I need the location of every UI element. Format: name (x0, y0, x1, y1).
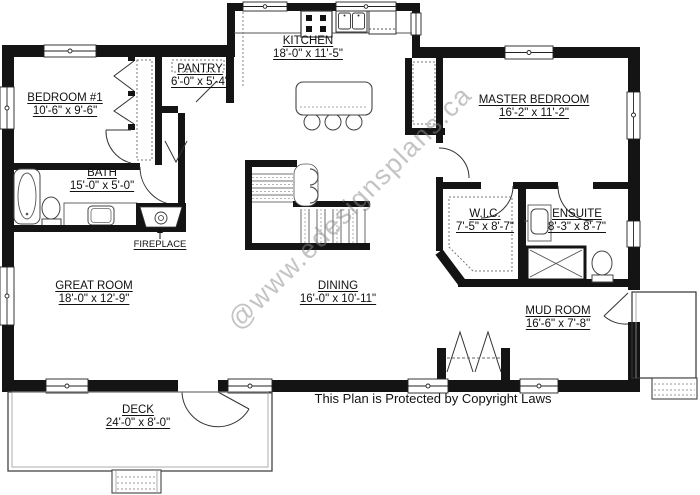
room-label-mud-room: MUD ROOM 16'-6" x 7'-8" (525, 305, 590, 331)
bedroom-closet-shelf (137, 60, 152, 160)
floor-plan: @www.edesignsplans.ca BEDROOM #1 10'-6" … (0, 0, 700, 495)
room-dims: 15'-0" x 5'-0" (70, 180, 134, 193)
mud-room-door (604, 293, 628, 324)
ensuite-toilet-icon (592, 251, 613, 282)
room-dims: 7'-5" x 8'-7" (456, 221, 514, 234)
stool-icon (304, 114, 320, 130)
room-dims: 18'-0" x 11'-5" (273, 48, 343, 61)
bedroom1-door (106, 130, 131, 163)
room-dims: 16'-2" x 11'-2" (479, 107, 590, 120)
room-name: GREAT ROOM (55, 280, 133, 293)
room-label-bath: BATH 15'-0" x 5'-0" (70, 167, 134, 193)
room-name: W.I.C. (456, 208, 514, 221)
room-dims: 16'-6" x 7'-8" (525, 318, 590, 331)
bath-door (140, 167, 178, 205)
room-label-dining: DINING 16'-0" x 10'-11" (300, 280, 376, 306)
deck-door (182, 392, 249, 427)
double-sink-icon (336, 11, 367, 32)
exterior-walls (2, 3, 640, 392)
porch-structure (632, 292, 697, 399)
room-name: PANTRY (171, 63, 229, 76)
fridge-icon (369, 11, 396, 34)
porch-steps (652, 378, 697, 399)
master-bedroom-door (439, 148, 469, 178)
room-dims: 6'-0" x 5'-4" (171, 76, 229, 89)
mudroom-closet-bifold-doors (447, 332, 501, 372)
stair-treads-upper (252, 174, 293, 202)
room-name: MUD ROOM (525, 305, 590, 318)
room-label-master-bedroom: MASTER BEDROOM 16'-2" x 11'-2" (479, 94, 590, 120)
room-label-great-room: GREAT ROOM 18'-0" x 12'-9" (55, 280, 133, 306)
bath-vanity-sink-icon (64, 203, 137, 228)
ensuite-sink-icon (524, 205, 551, 241)
room-label-ensuite: ENSUITE 8'-3" x 8'-7" (548, 208, 606, 234)
room-dims: 8'-3" x 8'-7" (548, 221, 606, 234)
wic-chamfer-wall (439, 252, 463, 284)
room-name: DINING (300, 280, 376, 293)
room-name: KITCHEN (273, 35, 343, 48)
room-label-deck: DECK 24'-0" x 8'-0" (106, 404, 170, 430)
room-label-kitchen: KITCHEN 18'-0" x 11'-5" (273, 35, 343, 61)
room-label-pantry: PANTRY 6'-0" x 5'-4" (171, 63, 229, 89)
stool-icon (325, 114, 341, 130)
room-dims: 24'-0" x 8'-0" (106, 417, 170, 430)
room-dims: 10'-6" x 9'-6" (27, 105, 102, 118)
bathtub-icon (14, 169, 40, 224)
room-name: BATH (70, 167, 134, 180)
toilet-icon (42, 197, 61, 228)
room-name: MASTER BEDROOM (479, 94, 590, 107)
room-dims: 16'-0" x 10'-11" (300, 293, 376, 306)
shower-icon (527, 247, 585, 280)
kitchen-fixtures (234, 11, 412, 130)
stair-handrail (294, 164, 318, 206)
room-label-bedroom1: BEDROOM #1 10'-6" x 9'-6" (27, 92, 102, 118)
copyright-notice: This Plan is Protected by Copyright Laws (315, 391, 552, 406)
stove-icon (301, 11, 332, 37)
room-name: DECK (106, 404, 170, 417)
room-dims: 18'-0" x 12'-9" (55, 293, 133, 306)
room-name: ENSUITE (548, 208, 606, 221)
kitchen-island (296, 82, 372, 130)
room-name: BEDROOM #1 (27, 92, 102, 105)
room-label-wic: W.I.C. 7'-5" x 8'-7" (456, 208, 514, 234)
fireplace-label: FIREPLACE (134, 239, 187, 250)
stool-icon (346, 114, 362, 130)
deck-steps (112, 470, 161, 493)
